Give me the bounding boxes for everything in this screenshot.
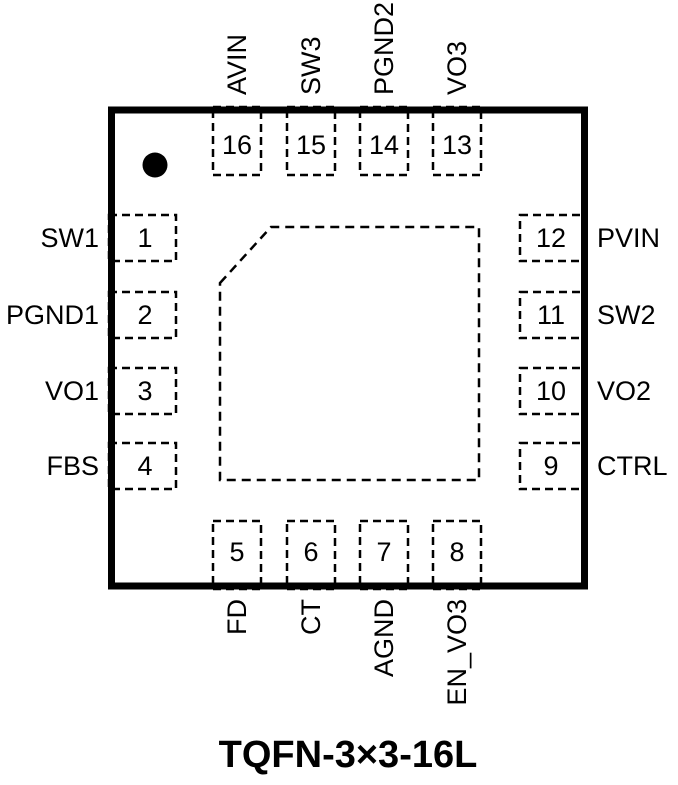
pin-number-15: 15 xyxy=(296,130,326,160)
pin-label-en-vo3: EN_VO3 xyxy=(442,599,472,706)
pin-number-12: 12 xyxy=(536,223,566,253)
pin-label-vo2: VO2 xyxy=(597,376,651,406)
package-outline xyxy=(112,110,585,586)
pin-number-4: 4 xyxy=(137,451,152,481)
pin-label-avin: AVIN xyxy=(222,34,252,95)
pin-label-pgnd2: PGND2 xyxy=(369,2,399,95)
pin-label-fbs: FBS xyxy=(46,451,99,481)
pin-number-5: 5 xyxy=(229,537,244,567)
pin1-indicator-icon xyxy=(143,153,168,178)
pin-number-3: 3 xyxy=(137,376,152,406)
pin-label-sw3: SW3 xyxy=(296,36,326,95)
pin-label-ct: CT xyxy=(296,599,326,635)
pin-number-11: 11 xyxy=(537,300,565,330)
pin-label-sw1: SW1 xyxy=(40,223,99,253)
pin-label-agnd: AGND xyxy=(369,599,399,677)
pin-number-8: 8 xyxy=(449,537,464,567)
pin-number-7: 7 xyxy=(376,537,391,567)
pin-number-1: 1 xyxy=(137,223,152,253)
pin-label-pgnd1: PGND1 xyxy=(6,300,99,330)
pin-number-6: 6 xyxy=(303,537,318,567)
pin-number-13: 13 xyxy=(442,130,472,160)
pin-number-2: 2 xyxy=(137,300,152,330)
pin-label-ctrl: CTRL xyxy=(597,451,668,481)
pin-label-fd: FD xyxy=(222,599,252,635)
pin-number-10: 10 xyxy=(536,376,566,406)
pin-number-16: 16 xyxy=(222,130,252,160)
package-title: TQFN-3×3-16L xyxy=(219,734,478,776)
pinout-svg: 16 15 14 13 5 6 7 8 1 2 3 4 12 11 10 9 S… xyxy=(0,0,678,780)
pin-number-14: 14 xyxy=(369,130,399,160)
pin-label-sw2: SW2 xyxy=(597,300,656,330)
pin-label-vo1: VO1 xyxy=(45,376,99,406)
pin-label-vo3: VO3 xyxy=(442,41,472,95)
pin-label-pvin: PVIN xyxy=(597,223,660,253)
pin-number-9: 9 xyxy=(543,451,558,481)
pinout-diagram: 16 15 14 13 5 6 7 8 1 2 3 4 12 11 10 9 S… xyxy=(0,0,678,780)
